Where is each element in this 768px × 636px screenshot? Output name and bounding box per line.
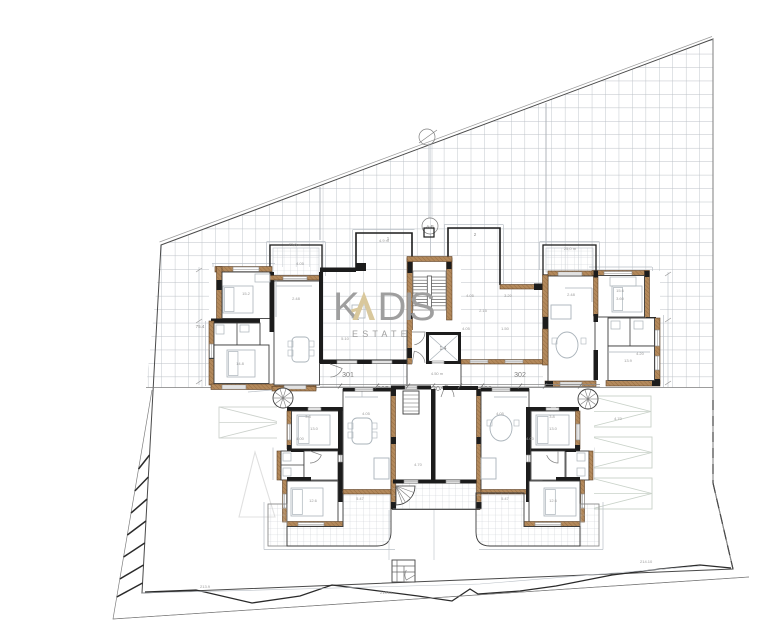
svg-text:13.0: 13.0 [310,426,319,431]
svg-text:4.05: 4.05 [466,293,475,298]
svg-text:12.6: 12.6 [309,498,318,503]
svg-text:1.4: 1.4 [440,346,447,352]
svg-text:3.20: 3.20 [504,293,513,298]
svg-text:ESTATE: ESTATE [352,329,411,339]
svg-text:302: 302 [514,372,526,379]
svg-text:14.8: 14.8 [236,361,245,366]
svg-text:25,0 m: 25,0 m [564,246,577,251]
svg-text:4.00: 4.00 [296,436,305,441]
svg-text:2.48: 2.48 [292,296,301,301]
svg-text:2.48: 2.48 [567,292,576,297]
svg-text:4.70: 4.70 [614,416,623,421]
svg-text:15.2: 15.2 [242,291,251,296]
svg-text:S: S [409,285,436,329]
svg-text:3.8: 3.8 [549,414,555,419]
svg-text:75.4: 75.4 [196,324,205,329]
svg-text:4.70: 4.70 [414,462,423,467]
svg-text:3.60: 3.60 [616,296,625,301]
svg-text:301: 301 [342,372,354,379]
svg-text:4.50 m: 4.50 m [431,371,444,376]
svg-text:3.8: 3.8 [305,414,311,419]
svg-text:1.50: 1.50 [501,326,510,331]
svg-text:25,0 m: 25,0 m [289,242,302,247]
svg-text:5.47: 5.47 [356,496,365,501]
svg-text:D: D [378,285,407,329]
svg-text:13.0: 13.0 [549,426,558,431]
svg-text:4.05: 4.05 [296,261,305,266]
svg-text:213.9: 213.9 [200,584,211,589]
svg-text:K: K [333,285,360,329]
svg-text:12.6: 12.6 [549,498,558,503]
svg-text:4.00: 4.00 [526,436,535,441]
svg-text:4.05: 4.05 [462,326,471,331]
svg-text:4.05: 4.05 [362,411,371,416]
svg-text:4.20: 4.20 [636,351,645,356]
svg-text:2.15: 2.15 [479,308,488,313]
svg-text:4.05: 4.05 [496,411,505,416]
svg-text:5.47: 5.47 [501,496,510,501]
svg-text:15.6: 15.6 [616,288,625,293]
svg-text:214.10: 214.10 [640,559,653,564]
svg-text:13.9: 13.9 [624,358,633,363]
svg-text:5.10: 5.10 [341,336,350,341]
svg-text:213.65: 213.65 [380,590,393,595]
